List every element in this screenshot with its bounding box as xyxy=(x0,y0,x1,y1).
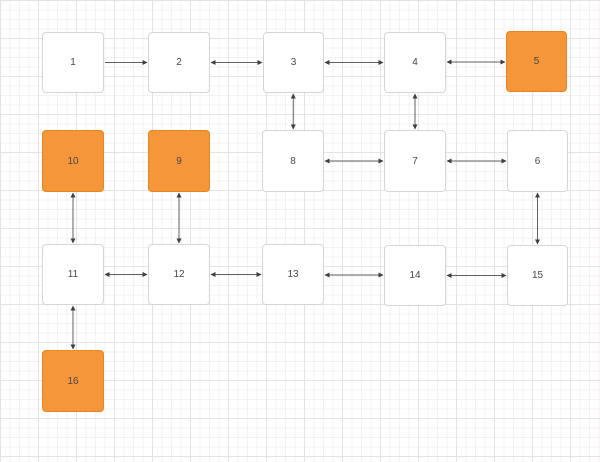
node-label: 10 xyxy=(67,156,78,167)
node-label: 5 xyxy=(534,56,540,67)
node-label: 2 xyxy=(176,57,182,68)
diagram-node-2[interactable]: 2 xyxy=(148,32,210,93)
diagram-node-10[interactable]: 10 xyxy=(42,130,104,192)
diagram-node-11[interactable]: 11 xyxy=(42,244,104,305)
diagram-node-1[interactable]: 1 xyxy=(42,32,104,93)
node-label: 11 xyxy=(68,269,78,280)
node-label: 14 xyxy=(409,270,420,281)
node-label: 7 xyxy=(412,156,418,167)
diagram-node-13[interactable]: 13 xyxy=(262,244,324,305)
node-label: 1 xyxy=(70,57,76,68)
diagram-node-14[interactable]: 14 xyxy=(384,245,446,306)
node-label: 13 xyxy=(287,269,298,280)
node-label: 12 xyxy=(173,269,184,280)
diagram-canvas[interactable]: 12345109876111213141516 xyxy=(0,0,600,462)
diagram-node-8[interactable]: 8 xyxy=(262,130,324,192)
diagram-node-5[interactable]: 5 xyxy=(506,31,567,92)
node-label: 15 xyxy=(532,270,543,281)
node-label: 3 xyxy=(291,57,297,68)
diagram-node-16[interactable]: 16 xyxy=(42,350,104,412)
node-label: 4 xyxy=(412,57,418,68)
diagram-node-15[interactable]: 15 xyxy=(507,245,568,306)
diagram-node-6[interactable]: 6 xyxy=(507,130,568,192)
diagram-node-9[interactable]: 9 xyxy=(148,130,210,192)
node-label: 16 xyxy=(67,376,78,387)
diagram-node-12[interactable]: 12 xyxy=(148,244,210,305)
node-label: 9 xyxy=(176,156,182,167)
diagram-node-3[interactable]: 3 xyxy=(263,32,324,93)
node-label: 8 xyxy=(290,156,296,167)
diagram-node-7[interactable]: 7 xyxy=(384,130,446,192)
node-label: 6 xyxy=(535,156,541,167)
diagram-node-4[interactable]: 4 xyxy=(384,32,446,93)
